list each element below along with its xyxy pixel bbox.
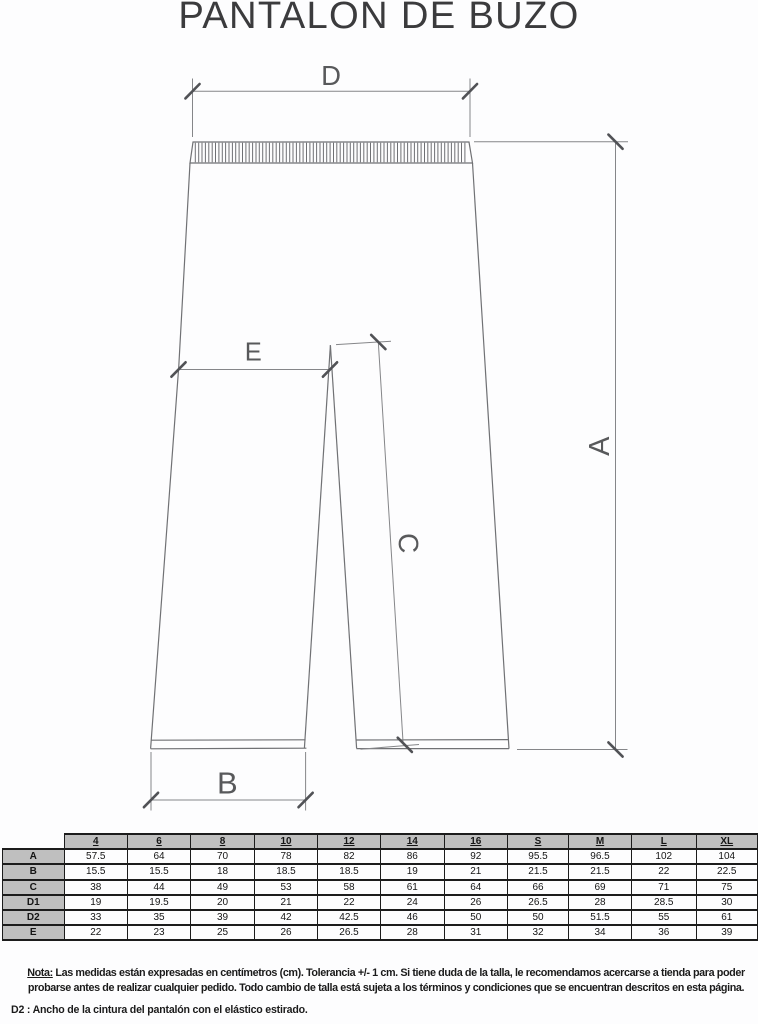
svg-text:A: A bbox=[584, 436, 616, 456]
svg-text:B: B bbox=[217, 765, 238, 800]
svg-text:E: E bbox=[245, 339, 262, 367]
svg-text:D: D bbox=[321, 60, 341, 91]
svg-text:C: C bbox=[392, 533, 424, 554]
